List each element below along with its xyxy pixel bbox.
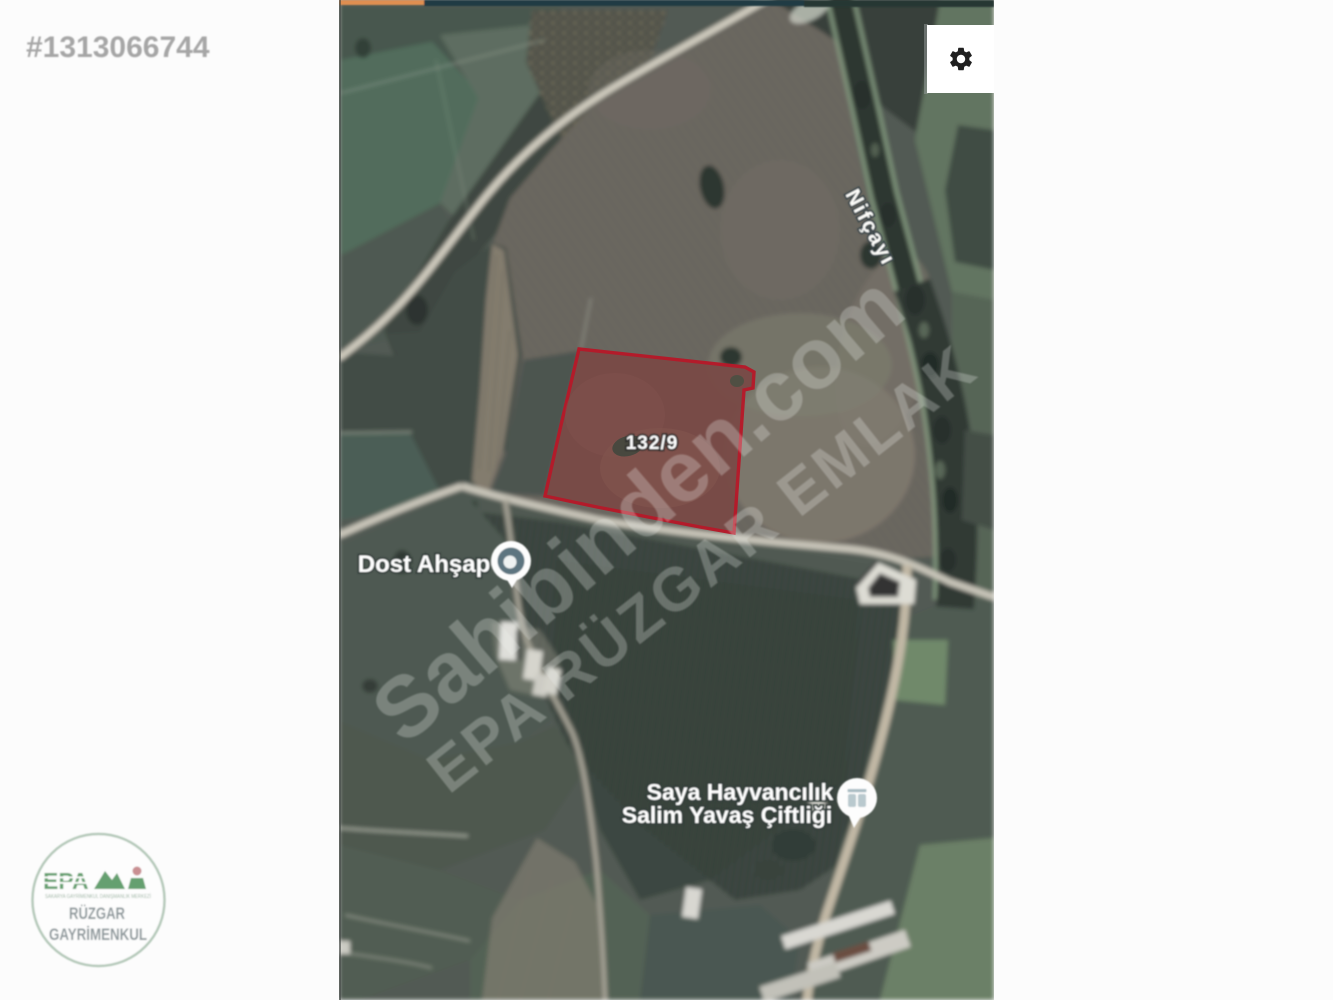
svg-text:132/9: 132/9 [626, 433, 679, 454]
svg-text:RÜZGAR: RÜZGAR [69, 904, 125, 923]
svg-text:GAYRİMENKUL: GAYRİMENKUL [49, 925, 147, 944]
svg-text:EPA: EPA [43, 868, 89, 894]
svg-text:Salim Yavaş Çiftliği: Salim Yavaş Çiftliği [622, 802, 833, 828]
svg-text:Dost Ahşap: Dost Ahşap [358, 551, 490, 578]
svg-text:#1313066744: #1313066744 [26, 31, 210, 64]
svg-text:SAKARYA GAYRİMENKUL DANIŞMANLI: SAKARYA GAYRİMENKUL DANIŞMANLIK MERKEZİ [45, 893, 151, 900]
